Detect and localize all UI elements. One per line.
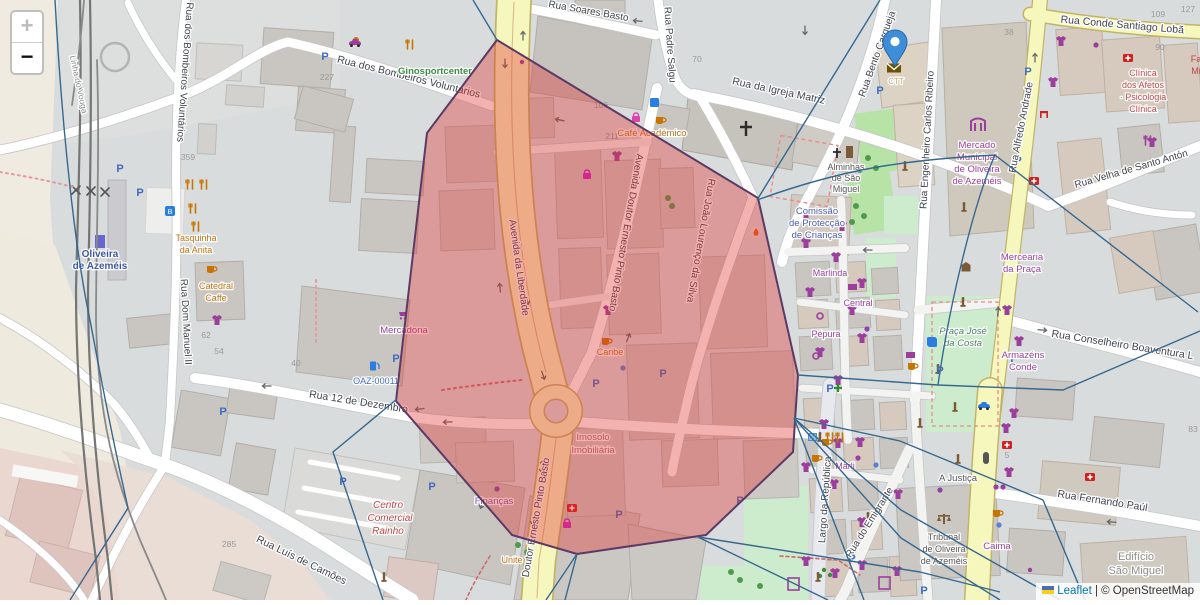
svg-text:Caima: Caima — [983, 541, 1011, 552]
svg-text:da Anita: da Anita — [180, 245, 213, 255]
svg-text:Centro: Centro — [373, 500, 403, 511]
svg-text:dos Afetos: dos Afetos — [1122, 80, 1165, 90]
svg-text:P: P — [920, 585, 927, 597]
svg-text:São Miguel: São Miguel — [1108, 565, 1163, 577]
svg-text:da Praça: da Praça — [1003, 264, 1042, 275]
svg-text:Conde: Conde — [1009, 362, 1037, 373]
svg-text:P: P — [136, 187, 143, 199]
svg-text:P: P — [219, 406, 226, 418]
svg-text:Comercial: Comercial — [367, 513, 413, 524]
svg-text:Rainho: Rainho — [372, 526, 404, 537]
svg-text:70: 70 — [692, 54, 702, 64]
svg-text:P: P — [116, 163, 123, 175]
svg-text:Armazéns: Armazéns — [1002, 350, 1045, 361]
svg-text:Ginosportcenter: Ginosportcenter — [398, 66, 472, 77]
svg-text:Catedral: Catedral — [199, 281, 233, 291]
svg-text:Oliveira: Oliveira — [82, 249, 119, 260]
svg-text:38: 38 — [1004, 27, 1014, 37]
svg-text:285: 285 — [222, 539, 236, 549]
svg-text:227: 227 — [320, 72, 334, 82]
svg-text:de São: de São — [832, 173, 861, 183]
svg-text:de Protecção: de Protecção — [789, 218, 845, 229]
svg-text:83: 83 — [1188, 424, 1198, 434]
svg-text:P: P — [1024, 66, 1031, 78]
svg-text:Miguel: Miguel — [833, 184, 860, 194]
svg-text:62: 62 — [201, 330, 211, 340]
svg-text:P: P — [876, 85, 883, 97]
svg-text:de Oliveira: de Oliveira — [954, 164, 1000, 175]
svg-text:5: 5 — [1005, 450, 1010, 460]
svg-text:Fa: Fa — [1191, 54, 1200, 64]
svg-text:de Crianças: de Crianças — [792, 230, 843, 241]
svg-text:P: P — [392, 353, 399, 365]
svg-text:54: 54 — [214, 346, 224, 356]
svg-text:· Psicologia: · Psicologia — [1120, 92, 1167, 102]
svg-text:P: P — [321, 51, 328, 63]
svg-text:Mi: Mi — [1191, 66, 1200, 76]
svg-text:Mercado: Mercado — [959, 140, 996, 151]
svg-text:CTT: CTT — [888, 77, 904, 86]
svg-text:Edifício: Edifício — [1118, 551, 1154, 563]
svg-text:Central: Central — [843, 298, 872, 308]
svg-text:P: P — [428, 481, 435, 493]
svg-text:de Azeméis: de Azeméis — [952, 176, 1001, 187]
svg-text:Comissão: Comissão — [796, 206, 838, 217]
svg-text:109: 109 — [1151, 9, 1165, 19]
svg-text:Marlinda: Marlinda — [813, 268, 848, 278]
svg-text:OAZ-00011: OAZ-00011 — [353, 376, 399, 386]
svg-text:da Costa: da Costa — [944, 338, 982, 349]
svg-text:359: 359 — [181, 152, 195, 162]
svg-text:P: P — [826, 383, 833, 395]
svg-text:de Oliveira: de Oliveira — [922, 544, 965, 554]
svg-text:Pépura: Pépura — [811, 329, 840, 339]
svg-text:Clínica: Clínica — [1129, 104, 1157, 114]
svg-text:Unite: Unite — [501, 555, 522, 565]
svg-text:90: 90 — [1155, 42, 1165, 52]
svg-text:127: 127 — [1181, 4, 1195, 14]
svg-text:Tasquinha: Tasquinha — [175, 233, 216, 243]
svg-text:40: 40 — [291, 358, 301, 368]
svg-text:Caffe: Caffe — [205, 293, 226, 303]
svg-text:B: B — [167, 207, 172, 216]
svg-text:Clínica: Clínica — [1129, 68, 1157, 78]
svg-text:A Justiça: A Justiça — [939, 473, 978, 484]
svg-text:Mercearia: Mercearia — [1001, 252, 1044, 263]
